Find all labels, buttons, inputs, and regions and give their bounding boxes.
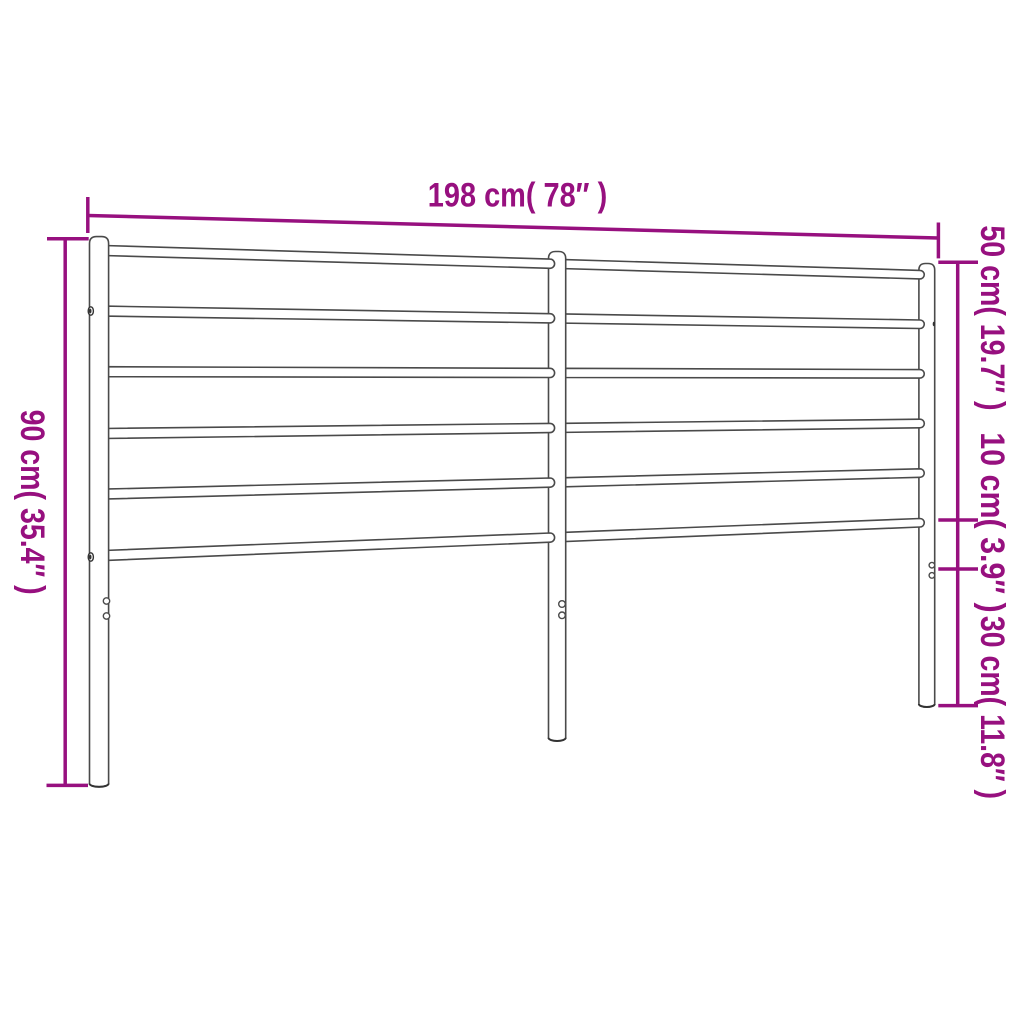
svg-text:10 cm( 3.9″ ): 10 cm( 3.9″ ) (973, 432, 1011, 612)
svg-text:50 cm( 19.7″ ): 50 cm( 19.7″ ) (973, 225, 1011, 410)
svg-text:198 cm( 78″ ): 198 cm( 78″ ) (428, 177, 607, 215)
svg-text:30 cm( 11.8″ ): 30 cm( 11.8″ ) (973, 616, 1011, 799)
svg-text:90 cm( 35.4″ ): 90 cm( 35.4″ ) (13, 410, 51, 595)
